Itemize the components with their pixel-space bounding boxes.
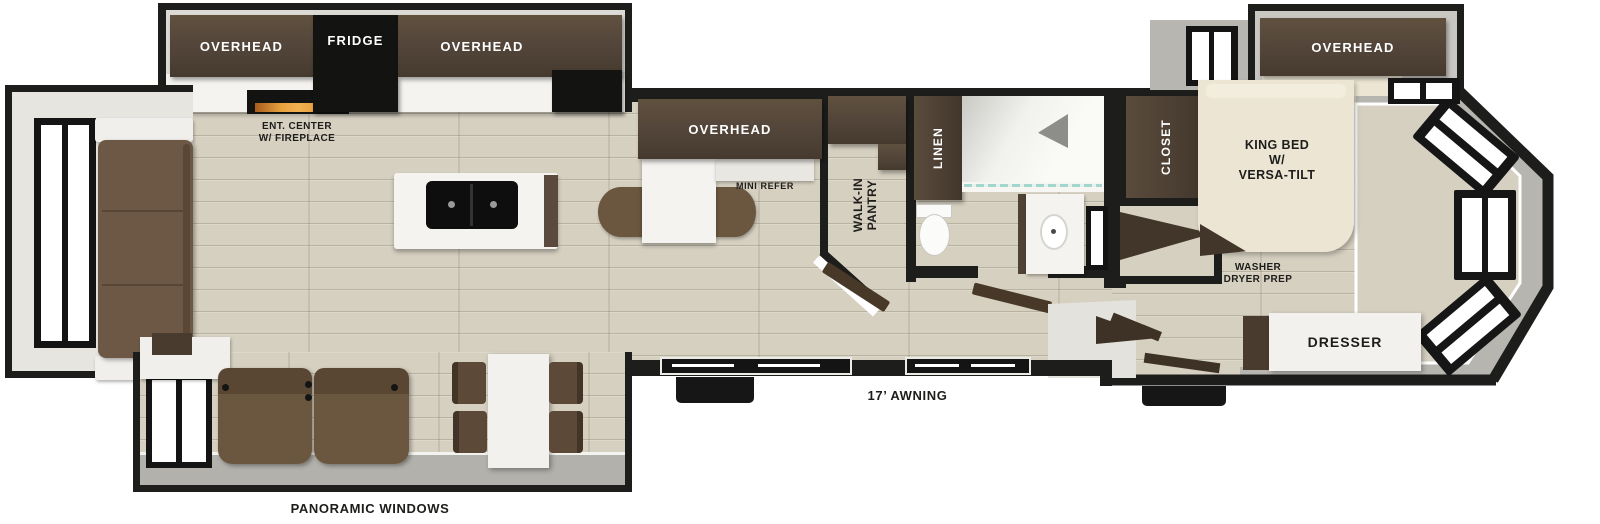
pantry-line2: PANTRY (866, 178, 880, 232)
window-pane (68, 125, 89, 341)
theater-seat-right (314, 368, 409, 464)
bottom-wall-window (905, 357, 1031, 375)
ent-center-line1: ENT. CENTER (238, 121, 356, 133)
cap-window-middle (1454, 190, 1516, 280)
vanity-faucet (1051, 229, 1056, 234)
linen-label: LINEN (930, 98, 946, 198)
mini-refer-counter (716, 159, 814, 181)
island-side-panel (544, 175, 558, 247)
overhead-galley-label: OVERHEAD (638, 99, 822, 159)
bed-pillow-band (1206, 84, 1346, 98)
rv-floorplan: OVERHEAD FRIDGE OVERHEAD ENT. CENTER W/ … (0, 0, 1600, 524)
dinette-chair (452, 362, 486, 404)
wall-jog (1100, 360, 1112, 386)
window-pane (1426, 83, 1452, 99)
vanity (1026, 194, 1084, 274)
door-pantry (822, 262, 891, 312)
bath-bottom-wall-left (906, 266, 978, 278)
bedroom-right-window (1388, 78, 1460, 104)
bottom-wall-window (660, 357, 852, 375)
wd-line1: WASHER (1198, 262, 1318, 274)
sofa-slide-window (34, 118, 96, 348)
walk-in-pantry-label: WALK-IN PANTRY (849, 145, 883, 265)
sofa (98, 140, 193, 358)
living-slide-window (146, 374, 212, 468)
window-pane (182, 380, 206, 462)
bar-counter-right (714, 187, 756, 237)
dinette-table (488, 354, 549, 468)
entry-steps-bedroom (1142, 386, 1226, 406)
overhead-bedroom-label: OVERHEAD (1260, 18, 1446, 76)
bedroom-step-tread-2 (1144, 353, 1221, 373)
window-sill (758, 364, 820, 367)
dinette-chair (549, 362, 583, 404)
dresser-side-panel (1243, 316, 1269, 370)
peninsula-counter (642, 159, 716, 243)
king-bed-label: KING BED W/ VERSA-TILT (1197, 138, 1357, 182)
dinette-chair (453, 411, 487, 453)
sink-faucet (448, 201, 455, 208)
window-pane (41, 125, 62, 341)
shower (962, 96, 1104, 184)
shower-glass (964, 184, 1102, 187)
window-sill (971, 364, 1015, 367)
sink-divider (470, 184, 473, 226)
washer-dryer-label: WASHER DRYER PREP (1198, 262, 1318, 286)
island-sink (426, 181, 518, 229)
bar-counter-left (598, 187, 644, 237)
cupholder (222, 384, 229, 391)
toilet-bowl (919, 214, 950, 256)
window-pane (152, 380, 176, 462)
cupholder (305, 394, 312, 401)
window-sill (915, 364, 959, 367)
cupholder (305, 381, 312, 388)
shower-head (1038, 114, 1068, 148)
sink-faucet (490, 201, 497, 208)
window-pane (1192, 32, 1209, 80)
overhead-kitchen-left-label: OVERHEAD (170, 15, 313, 77)
dresser-label: DRESSER (1308, 334, 1383, 351)
entry-steps-main (676, 377, 754, 403)
fridge-label: FRIDGE (313, 30, 398, 50)
mini-refer-label: MINI REFER (715, 181, 815, 192)
sofa-seam (102, 284, 189, 286)
cupholder (391, 384, 398, 391)
panoramic-windows-label: PANORAMIC WINDOWS (240, 501, 500, 517)
dresser: DRESSER (1269, 313, 1421, 371)
pantry-cabinet (828, 96, 906, 144)
king-bed-line3: VERSA-TILT (1197, 168, 1357, 183)
wd-line2: DRYER PREP (1198, 274, 1318, 286)
corner-cabinet-top (152, 333, 192, 355)
ent-center-label: ENT. CENTER W/ FIREPLACE (238, 121, 356, 145)
sofa-seam (102, 210, 189, 212)
ent-center-line2: W/ FIREPLACE (238, 133, 356, 145)
sofa-armrest-top (95, 118, 193, 142)
theater-seat-left (218, 368, 312, 464)
window-sill (672, 364, 734, 367)
sofa-front-edge (183, 144, 190, 354)
door-bathroom (972, 283, 1053, 314)
pantry-line1: WALK-IN (852, 178, 866, 232)
king-bed-line1: KING BED (1197, 138, 1357, 153)
awning-label: 17’ AWNING (820, 388, 995, 404)
bath-mirror (1086, 206, 1108, 270)
closet-label: CLOSET (1158, 97, 1174, 197)
vanity-backsplash (1018, 194, 1026, 274)
dinette-chair (549, 411, 583, 453)
bedroom-left-window (1186, 26, 1238, 86)
king-bed-line2: W/ (1197, 153, 1357, 168)
window-pane (1394, 83, 1420, 99)
window-pane (1214, 32, 1231, 80)
overhead-kitchen-right-label: OVERHEAD (398, 15, 566, 77)
